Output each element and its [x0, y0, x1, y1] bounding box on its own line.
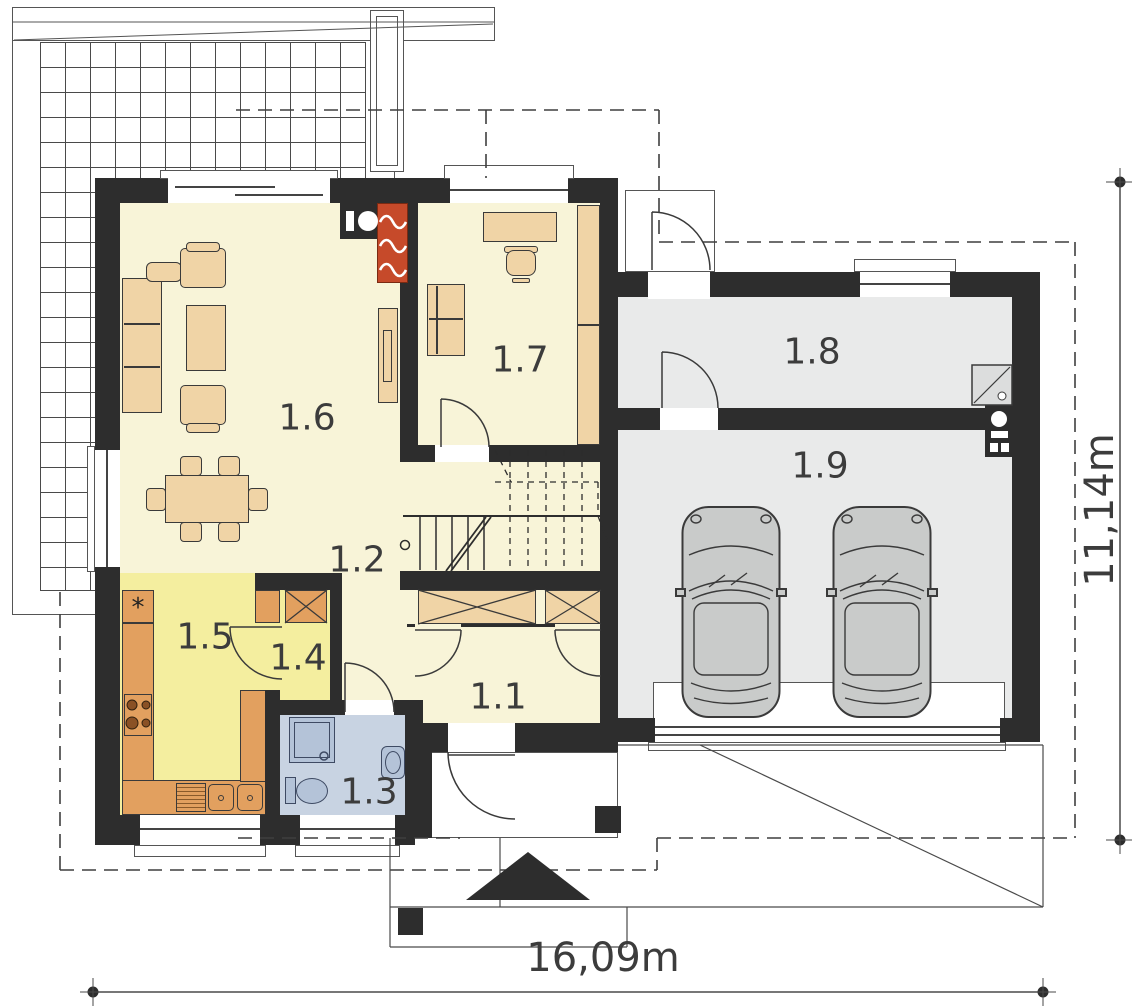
office-chair-base [512, 278, 530, 283]
toilet-bowl [296, 778, 328, 804]
window-terrace-slider-line2 [235, 194, 323, 196]
kitchen-counter-right [240, 690, 268, 782]
fireplace [377, 203, 408, 283]
sofa-cushion-line1 [124, 323, 160, 325]
window-living-left-sill [87, 446, 95, 572]
fridge-symbol: * [132, 593, 145, 623]
entrance-arrow-icon [466, 852, 590, 900]
pergola-band [12, 7, 495, 41]
armchair-top-back [186, 242, 220, 252]
dimension-width-label: 16,09m [526, 935, 679, 981]
floor-plan: * [0, 0, 1132, 1006]
sofa-headrest [146, 262, 182, 282]
room-label-1-4: 1.4 [269, 638, 326, 679]
living-chimney-flue-icon [346, 211, 354, 231]
window-terrace-slider [168, 178, 330, 203]
living-chimney-circle-icon [358, 211, 378, 231]
room-label-1-7: 1.7 [491, 340, 548, 381]
wall-under-stairs [400, 571, 618, 590]
armchair-bottom [180, 385, 226, 425]
hall-closet-narrow [545, 590, 601, 624]
room-label-1-3: 1.3 [340, 772, 397, 813]
sofa-cushion-line2 [124, 366, 160, 368]
sofa [122, 278, 162, 413]
window-office-line [450, 189, 568, 191]
door-gap-office [435, 445, 489, 462]
dining-chair-4 [218, 522, 240, 542]
kitchen-counter-top-right [255, 590, 280, 623]
shower-tray [294, 722, 330, 758]
office-sofa-cushion [429, 318, 463, 320]
dining-table [165, 475, 249, 523]
window-living-left-line [106, 450, 108, 567]
dimension-height-label: 11,14m [1077, 433, 1123, 586]
sink-drainer [176, 783, 206, 812]
room-label-1-9: 1.9 [791, 446, 848, 487]
wall-garage-right [1012, 272, 1040, 742]
room-label-1-2: 1.2 [328, 540, 385, 581]
hall-closet-wide [418, 590, 536, 624]
wall-pantry-right [330, 573, 342, 715]
sink-basin-1 [208, 784, 234, 811]
dining-chair-3 [180, 522, 202, 542]
window-kitchen-sill [134, 845, 266, 857]
wall-entry-bottom [415, 723, 618, 752]
window-office-sill [444, 165, 574, 179]
office-chair [506, 250, 536, 276]
chimney-inner [376, 16, 398, 166]
walkway-post [398, 908, 423, 935]
window-terrace-slider-line1 [175, 186, 275, 188]
garage-door-threshold [648, 742, 1006, 751]
dining-chair-5 [146, 488, 166, 511]
armchair-bottom-back [186, 423, 220, 433]
office-sofa [427, 284, 465, 356]
closet-front-stub-left [407, 624, 415, 627]
office-wardrobe-divider [577, 324, 600, 326]
window-bath [300, 815, 395, 845]
back-porch [625, 190, 715, 272]
porch-pillar [595, 806, 621, 833]
room-label-1-5: 1.5 [176, 617, 233, 658]
room-label-1-8: 1.8 [783, 332, 840, 373]
door-gap-utility-garage [660, 408, 718, 430]
window-bath-line [300, 828, 395, 830]
door-gap-back [648, 272, 710, 299]
stove [124, 694, 152, 736]
office-sofa-line [436, 286, 438, 354]
window-kitchen [140, 815, 260, 845]
wall-bath-left [265, 690, 280, 815]
garage-door-line1 [655, 726, 1000, 728]
coffee-table [186, 305, 226, 371]
room-label-1-1: 1.1 [469, 677, 526, 718]
toilet-tank [285, 777, 296, 804]
wall-office-hall [400, 445, 618, 462]
dining-chair-1 [180, 456, 202, 476]
entry-porch [423, 752, 618, 838]
tv-board-inner [383, 330, 392, 382]
garage-chimney-bar-icon [991, 431, 1008, 438]
wall-porch-left [405, 752, 432, 838]
pantry-closet [285, 590, 327, 623]
garage-door-line2 [655, 734, 1000, 736]
window-kitchen-line [140, 828, 260, 830]
dining-chair-6 [248, 488, 268, 511]
garage-chimney-circle-icon [991, 411, 1007, 427]
desk [483, 212, 557, 242]
door-gap-bath [345, 700, 394, 715]
window-garage-sill [854, 259, 956, 272]
closet-front-stub-right [601, 624, 618, 627]
window-garage-line [860, 283, 950, 285]
garage-apron [653, 682, 1005, 720]
garage-chimney-sq2-icon [1001, 443, 1009, 452]
room-label-1-6: 1.6 [278, 398, 335, 439]
closet-front-line [461, 624, 555, 627]
garage-door [655, 718, 1000, 742]
window-bath-sill [295, 845, 400, 857]
armchair-top [180, 248, 226, 288]
door-gap-entry [448, 723, 515, 752]
sink-basin-2 [237, 784, 263, 811]
garage-chimney-sq1-icon [990, 443, 998, 452]
dining-chair-2 [218, 456, 240, 476]
